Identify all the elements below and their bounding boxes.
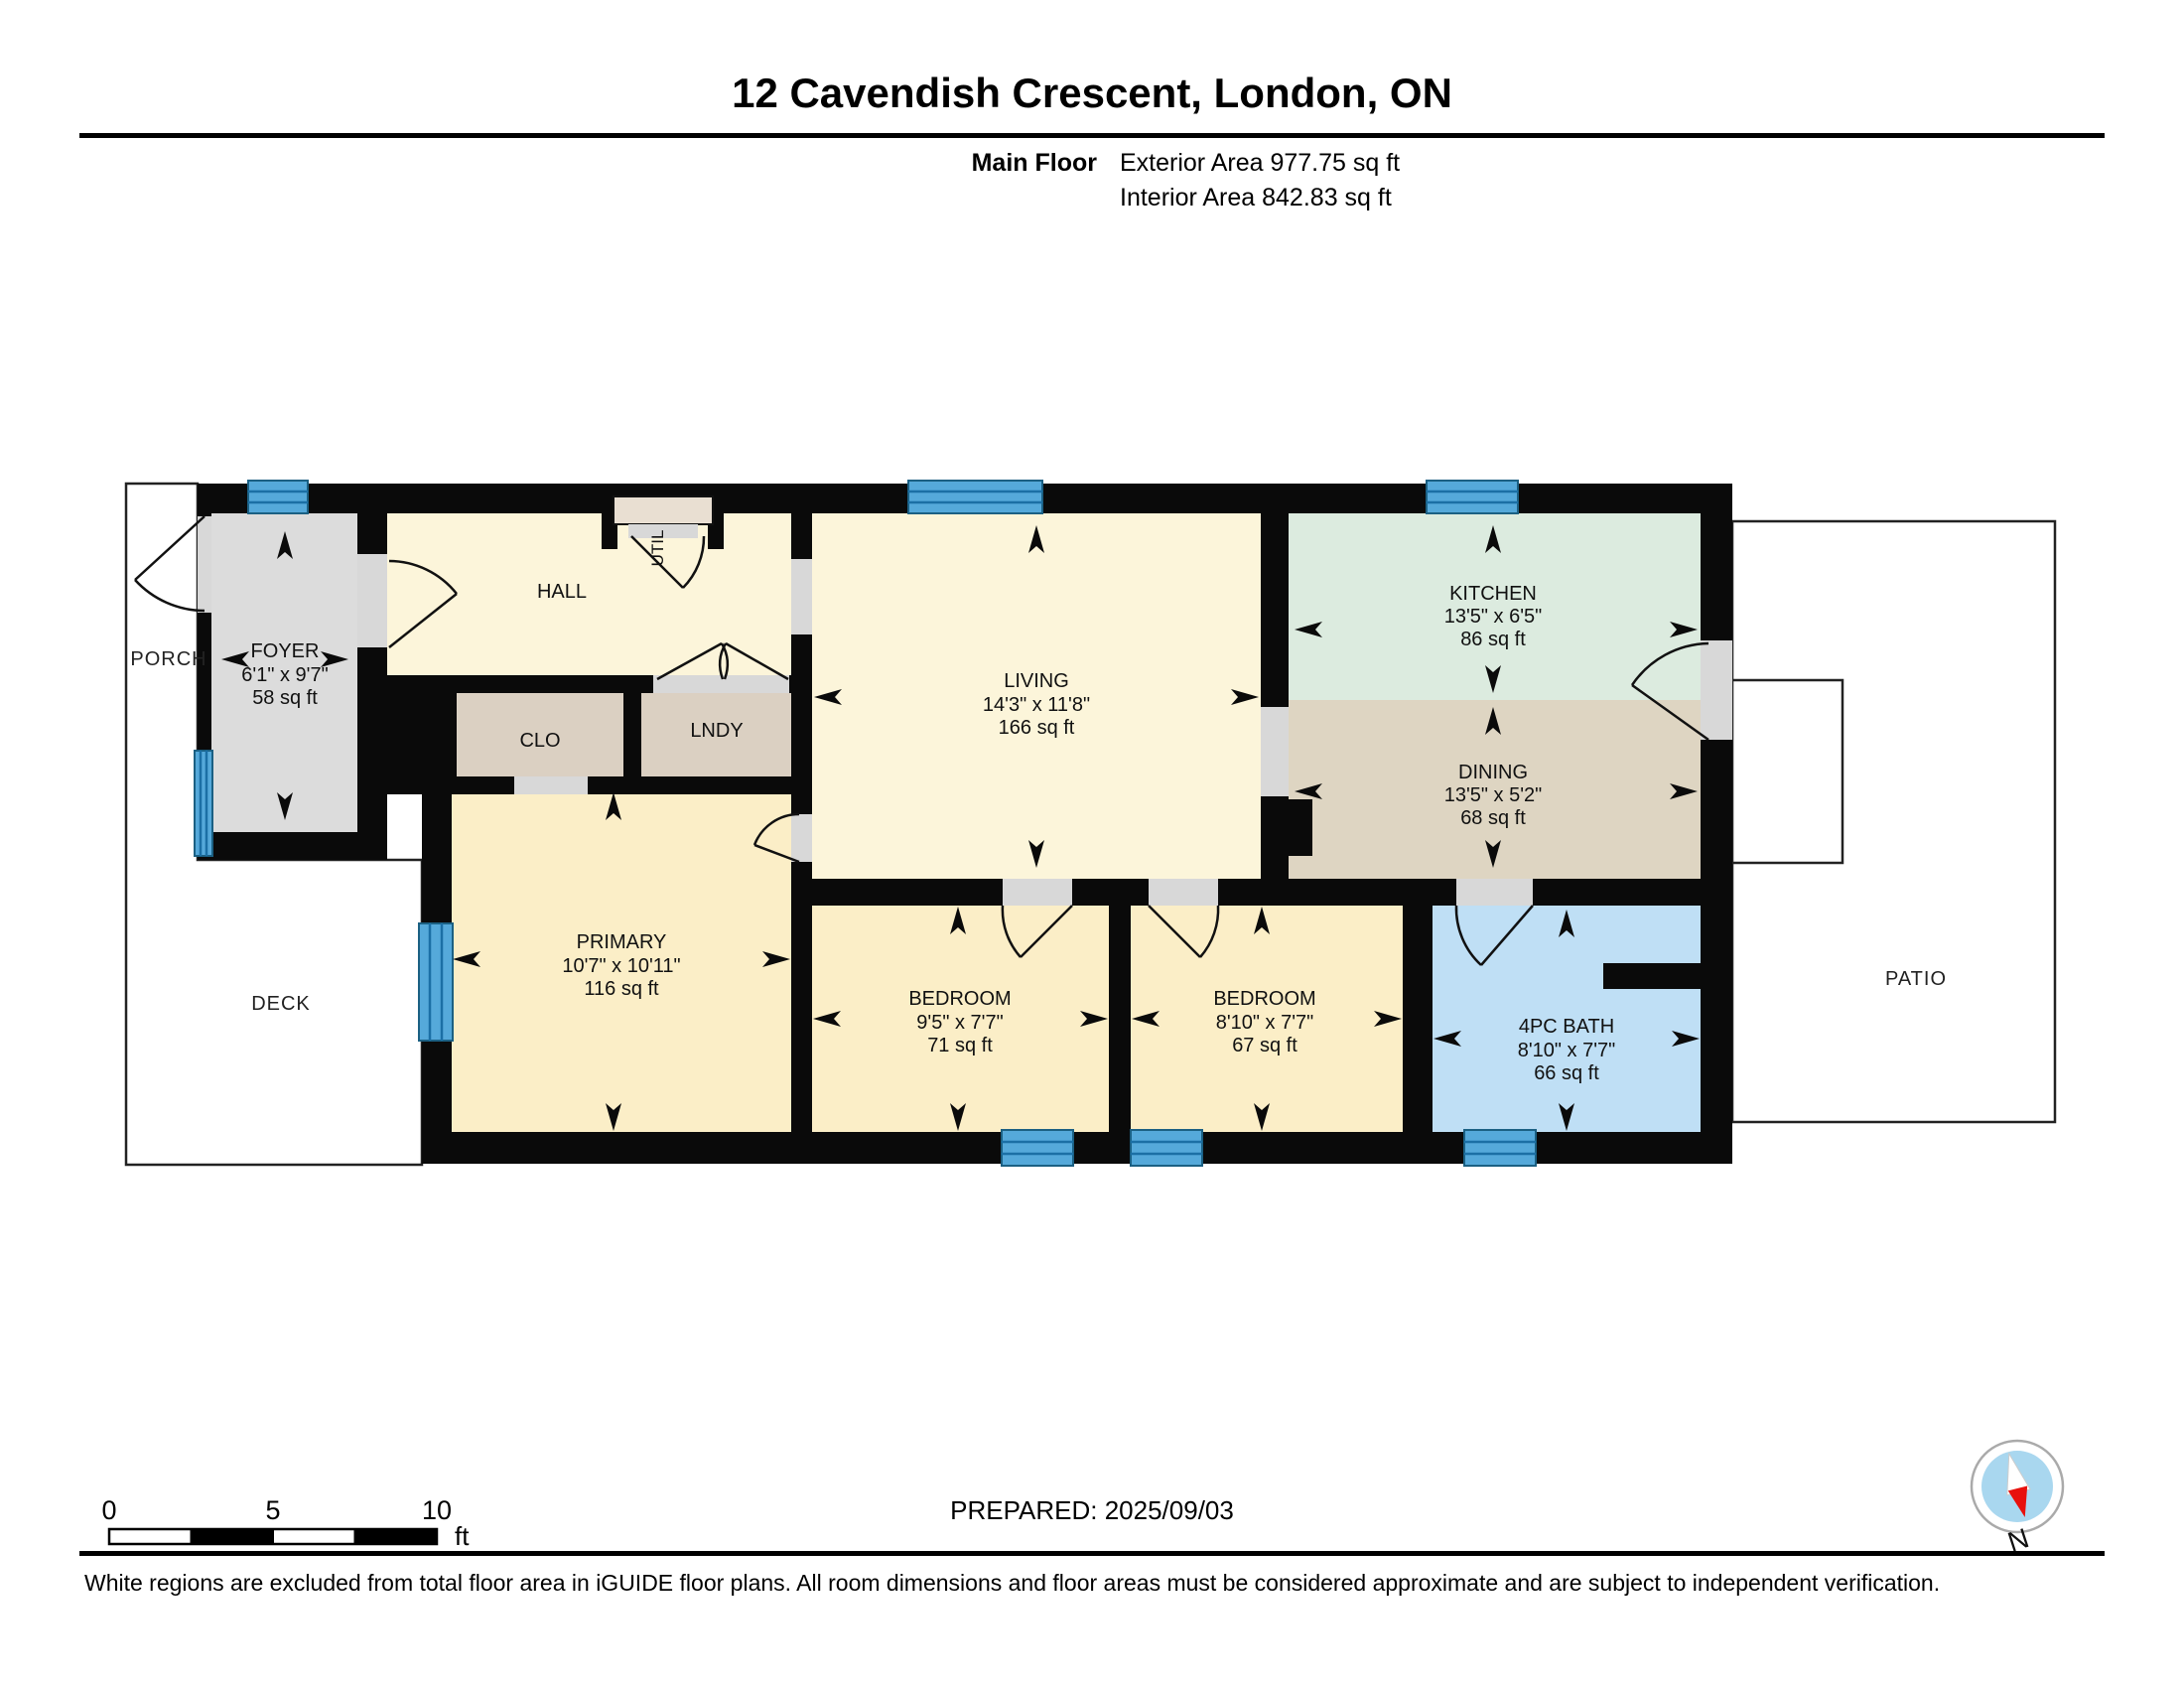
living-label: LIVING: [1004, 670, 1069, 692]
header-divider: [79, 133, 2105, 138]
bath-dims: 8'10" x 7'7": [1518, 1040, 1616, 1061]
kitchen-area: 86 sq ft: [1460, 629, 1526, 650]
dining-area: 68 sq ft: [1460, 807, 1526, 829]
footer-divider: [79, 1551, 2105, 1556]
bedroom2-label: BEDROOM: [1213, 988, 1315, 1010]
living-area: 166 sq ft: [999, 717, 1075, 739]
primary-area: 116 sq ft: [584, 978, 659, 1000]
living-dims: 14'3" x 11'8": [983, 694, 1090, 716]
bedroom1-area: 71 sq ft: [927, 1035, 993, 1056]
floorplan-page: 12 Cavendish Crescent, London, ON Main F…: [0, 0, 2184, 1688]
deck-label: DECK: [251, 993, 311, 1015]
bath-wall-stub: [1603, 963, 1701, 989]
header: 12 Cavendish Crescent, London, ON Main F…: [79, 70, 2105, 211]
disclaimer-text: White regions are excluded from total fl…: [84, 1570, 1940, 1596]
scale-tick-5: 5: [265, 1495, 280, 1525]
foyer-dims: 6'1" x 9'7": [241, 664, 328, 686]
footer: PREPARED: 2025/09/03 White regions are e…: [79, 1495, 2105, 1596]
hall-floor: [387, 513, 791, 675]
bath-area: 66 sq ft: [1534, 1062, 1599, 1084]
exterior-area: Exterior Area 977.75 sq ft: [1120, 149, 1400, 177]
dining-label: DINING: [1458, 762, 1528, 783]
foyer-label: FOYER: [251, 640, 320, 662]
scale-unit: ft: [455, 1521, 470, 1551]
bedroom2-area: 67 sq ft: [1232, 1035, 1297, 1056]
floor-label: Main Floor: [972, 149, 1098, 177]
bedroom1-dims: 9'5" x 7'7": [916, 1012, 1003, 1034]
hall-label: HALL: [537, 581, 587, 603]
patio-label: PATIO: [1885, 968, 1947, 990]
bedroom1-label: BEDROOM: [908, 988, 1011, 1010]
dining-dims: 13'5" x 5'2": [1444, 784, 1543, 806]
page-title: 12 Cavendish Crescent, London, ON: [732, 70, 1452, 116]
closet-label: CLO: [519, 730, 560, 752]
bath-label: 4PC BATH: [1519, 1016, 1614, 1038]
primary-label: PRIMARY: [577, 931, 667, 953]
primary-dims: 10'7" x 10'11": [562, 955, 680, 977]
prepared-date: PREPARED: 2025/09/03: [950, 1495, 1234, 1525]
patio-landing: [1732, 680, 1843, 863]
kitchen-dims: 13'5" x 6'5": [1444, 606, 1543, 628]
util-label: UTIL: [648, 530, 667, 567]
floorplan-canvas: 12 Cavendish Crescent, London, ON Main F…: [0, 0, 2184, 1688]
bedroom2-dims: 8'10" x 7'7": [1216, 1012, 1314, 1034]
scale-bar: 0 5 10 ft: [101, 1495, 470, 1551]
foyer-area: 58 sq ft: [252, 687, 318, 709]
interior-area: Interior Area 842.83 sq ft: [1120, 184, 1392, 211]
scale-tick-10: 10: [422, 1495, 452, 1525]
kitchen-label: KITCHEN: [1449, 583, 1537, 605]
laundry-label: LNDY: [690, 720, 743, 742]
scale-tick-0: 0: [101, 1495, 116, 1525]
compass-icon: N: [1972, 1441, 2063, 1558]
porch-label: PORCH: [130, 648, 206, 670]
